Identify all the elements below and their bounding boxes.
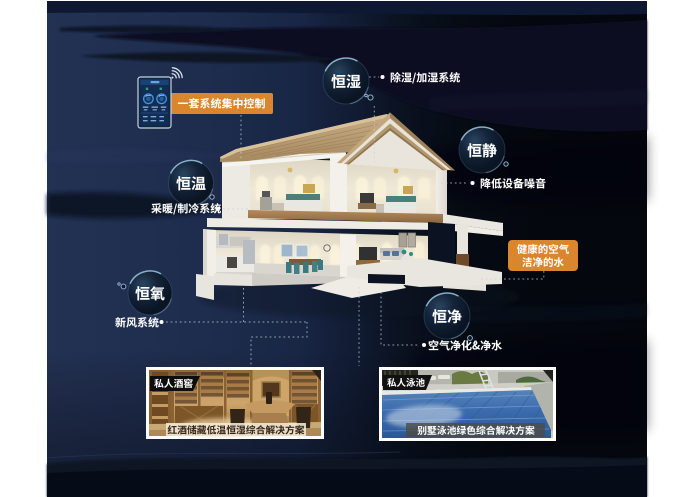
svg-text:别墅泳池绿色综合解决方案: 别墅泳池绿色综合解决方案 <box>417 423 535 437</box>
svg-text:空气净化&净水: 空气净化&净水 <box>428 338 502 354</box>
svg-text:除湿/加湿系统: 除湿/加湿系统 <box>390 70 460 86</box>
svg-text:新风系统: 新风系统 <box>115 315 159 331</box>
svg-text:红酒储藏低温恒湿综合解决方案: 红酒储藏低温恒湿综合解决方案 <box>167 423 304 437</box>
svg-text:恒湿: 恒湿 <box>331 71 361 92</box>
svg-text:私人泳池: 私人泳池 <box>387 375 426 389</box>
svg-text:采暖/制冷系统: 采暖/制冷系统 <box>151 201 221 217</box>
svg-text:恒氧: 恒氧 <box>135 283 165 304</box>
svg-text:一套系统集中控制: 一套系统集中控制 <box>178 96 266 112</box>
svg-text:洁净的水: 洁净的水 <box>522 255 564 270</box>
svg-text:降低设备噪音: 降低设备噪音 <box>480 176 546 192</box>
svg-text:恒温: 恒温 <box>176 173 206 194</box>
svg-text:恒净: 恒净 <box>432 306 462 327</box>
svg-text:恒静: 恒静 <box>467 140 497 161</box>
svg-text:私人酒窖: 私人酒窖 <box>154 376 193 390</box>
